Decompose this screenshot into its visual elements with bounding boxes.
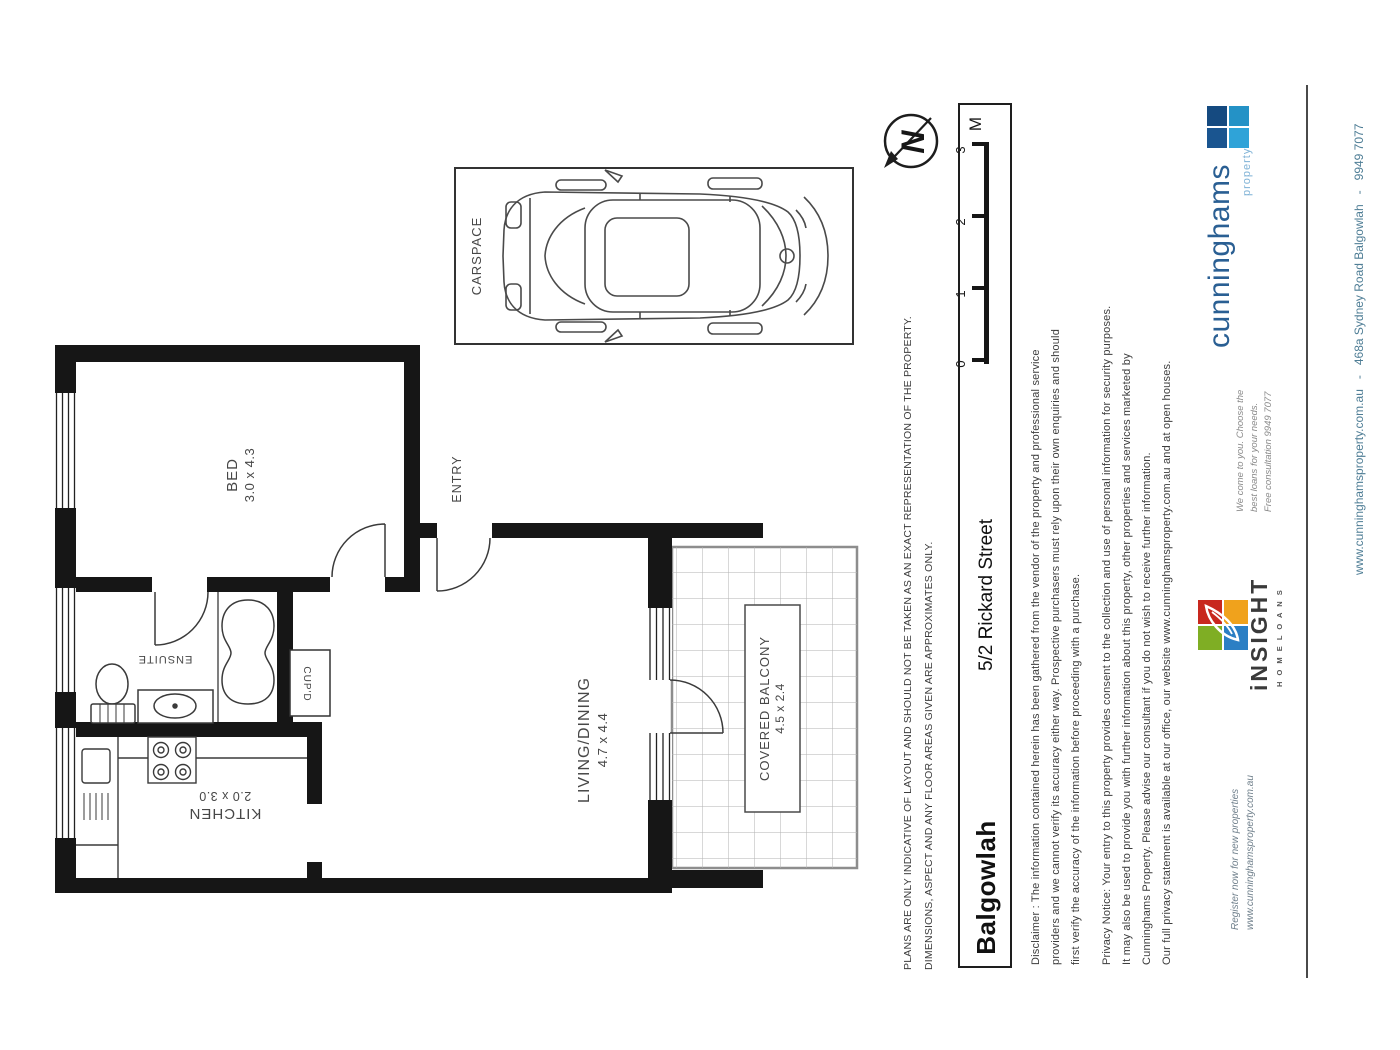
balcony-dims: 4.5 x 2.4 bbox=[773, 683, 788, 734]
plan-accuracy-line2: DIMENSIONS, ASPECT AND ANY FLOOR AREAS G… bbox=[919, 95, 940, 970]
register-promo-line2: www.cunninghamsproperty.com.au bbox=[1243, 725, 1258, 930]
insight-logo: iNSIGHT H O M E L O A N S bbox=[1196, 555, 1288, 695]
room-label-cupboard: CUP'D bbox=[294, 654, 318, 714]
room-label-kitchen: KITCHEN 2.0 x 3.0 bbox=[170, 782, 280, 828]
privacy-line4: Our full privacy statement is available … bbox=[1157, 95, 1177, 965]
car-wheel bbox=[708, 178, 762, 189]
loans-promo-line2: best loans for your needs. bbox=[1248, 386, 1262, 512]
toilet-tank bbox=[91, 704, 135, 723]
ensuite-door bbox=[155, 592, 208, 645]
room-label-bed: BED 3.0 x 4.3 bbox=[218, 420, 264, 530]
privacy-line1: Privacy Notice: Your entry to this prope… bbox=[1097, 95, 1117, 965]
cunninghams-squares-icon bbox=[1207, 106, 1249, 148]
bathtub bbox=[222, 600, 274, 704]
kitchen-sink bbox=[82, 749, 110, 783]
room-label-ensuite: ENSUITE bbox=[128, 648, 202, 668]
ensuite-label: ENSUITE bbox=[138, 651, 193, 665]
cunninghams-wordmark: cunninghams bbox=[1203, 164, 1237, 348]
privacy-line3: Cunninghams Property. Please advise our … bbox=[1137, 95, 1157, 965]
disclaimer-line1: Disclaimer : The information contained h… bbox=[1026, 95, 1046, 965]
insight-squares-icon bbox=[1198, 510, 1248, 650]
cunninghams-tagline: property bbox=[1241, 148, 1253, 196]
logo-square bbox=[1207, 106, 1227, 126]
address-street: 5/2 Rickard Street bbox=[970, 370, 1004, 820]
address-suburb: Balgowlah bbox=[966, 815, 1006, 960]
car-wheel bbox=[556, 180, 606, 190]
contact-line: www.cunninghamsproperty.com.au - 468a Sy… bbox=[1352, 95, 1378, 575]
bed-label: BED bbox=[224, 458, 243, 492]
bed-dims: 3.0 x 4.3 bbox=[242, 448, 258, 502]
loans-promo-line1: We come to you. Choose the bbox=[1234, 386, 1248, 512]
floorplan-page: N 3 2 1 0 M bbox=[0, 0, 1400, 1050]
car-wheel bbox=[556, 322, 606, 332]
loans-promo: We come to you. Choose the best loans fo… bbox=[1234, 386, 1280, 512]
register-promo: Register now for new properties www.cunn… bbox=[1228, 725, 1266, 930]
floorplan-drawing: N 3 2 1 0 M bbox=[0, 0, 1400, 1050]
room-label-carspace: CARSPACE bbox=[466, 212, 488, 300]
toilet-bowl bbox=[96, 664, 128, 704]
disclaimer-line2: providers and we cannot verify its accur… bbox=[1046, 95, 1066, 965]
cunninghams-logo: cunninghams property bbox=[1203, 100, 1259, 348]
insight-leaf-icon bbox=[1198, 600, 1248, 650]
disclaimer-note: Disclaimer : The information contained h… bbox=[1026, 95, 1088, 965]
room-label-balcony: COVERED BALCONY 4.5 x 2.4 bbox=[747, 607, 798, 810]
living-label: LIVING/DINING bbox=[575, 677, 595, 803]
car-body bbox=[503, 192, 800, 320]
entry-label: ENTRY bbox=[450, 455, 466, 502]
bedroom-door bbox=[332, 524, 385, 577]
cupboard-label: CUP'D bbox=[300, 666, 313, 701]
disclaimer-line3: first verify the accuracy of the informa… bbox=[1066, 95, 1086, 965]
kitchen-dims: 2.0 x 3.0 bbox=[199, 788, 251, 804]
logo-square bbox=[1229, 106, 1249, 126]
plan-accuracy-line1: PLANS ARE ONLY INDICATIVE OF LAYOUT AND … bbox=[898, 95, 919, 970]
logo-square bbox=[1207, 128, 1227, 148]
loans-promo-line3: Free consultation 9949 7077 bbox=[1262, 386, 1276, 512]
plan-accuracy-note: PLANS ARE ONLY INDICATIVE OF LAYOUT AND … bbox=[898, 95, 938, 970]
kitchen-label: KITCHEN bbox=[189, 803, 262, 822]
car-wheel bbox=[708, 323, 762, 334]
front-door bbox=[437, 538, 490, 591]
privacy-note: Privacy Notice: Your entry to this prope… bbox=[1097, 95, 1181, 965]
room-label-entry: ENTRY bbox=[448, 450, 468, 508]
register-promo-line1: Register now for new properties bbox=[1228, 725, 1243, 930]
divider-line bbox=[1306, 85, 1308, 978]
living-dims: 4.7 x 4.4 bbox=[595, 713, 611, 767]
room-label-living: LIVING/DINING 4.7 x 4.4 bbox=[568, 645, 618, 835]
logo-square bbox=[1229, 128, 1249, 148]
privacy-line2: It may also be used to provide you with … bbox=[1117, 95, 1137, 965]
balcony-label: COVERED BALCONY bbox=[757, 636, 773, 781]
insight-wordmark: iNSIGHT bbox=[1246, 577, 1273, 691]
carspace-label: CARSPACE bbox=[469, 217, 485, 296]
insight-tagline: H O M E L O A N S bbox=[1275, 588, 1284, 687]
